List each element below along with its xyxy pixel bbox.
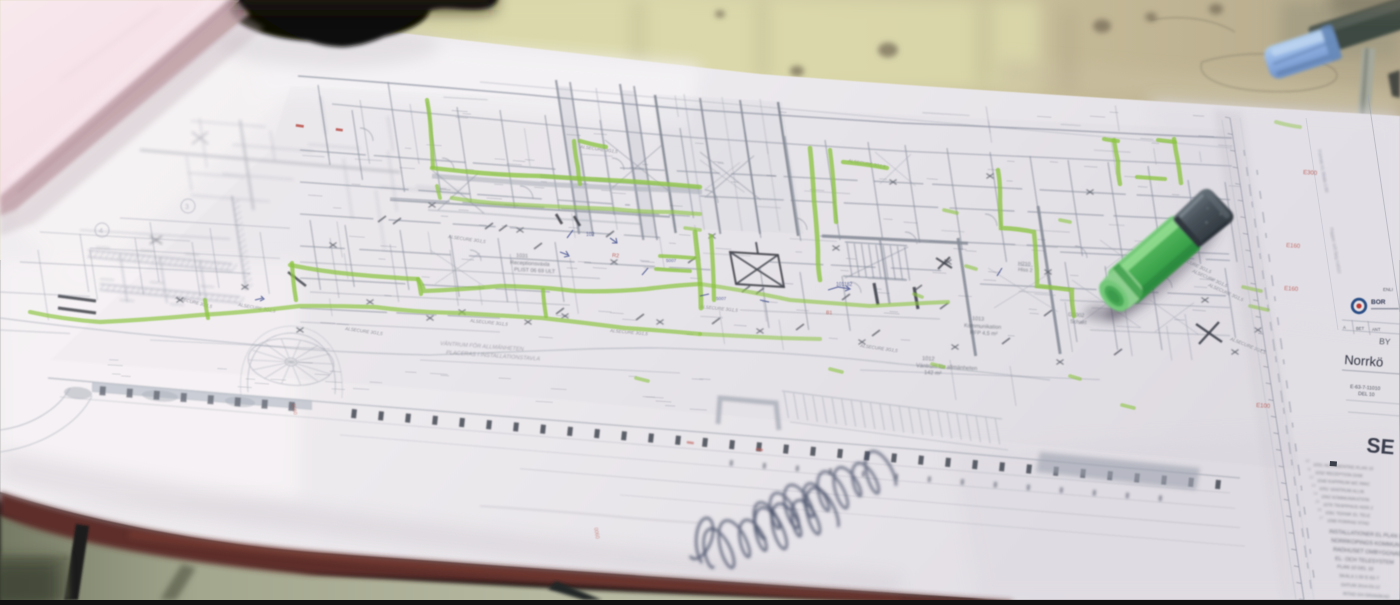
svg-text:A: A: [1343, 325, 1346, 330]
svg-text:B1: B1: [826, 310, 833, 316]
svg-text:DEL 10: DEL 10: [1358, 391, 1375, 398]
svg-text:SE: SE: [1366, 434, 1396, 459]
svg-text:3: 3: [185, 204, 189, 211]
svg-text:ENLI: ENLI: [1383, 287, 1393, 292]
svg-text:1012: 1012: [922, 356, 935, 363]
svg-text:142 m²: 142 m²: [924, 370, 942, 377]
svg-text:Norrkö: Norrkö: [1344, 352, 1384, 370]
svg-text:1031: 1031: [516, 253, 528, 260]
svg-text:Hiss 2: Hiss 2: [1018, 267, 1033, 274]
svg-text:E160: E160: [1286, 243, 1301, 250]
svg-text:102: 102: [586, 232, 595, 238]
svg-text:E300: E300: [1303, 170, 1318, 177]
svg-text:5007: 5007: [716, 296, 727, 301]
svg-text:BET: BET: [1356, 326, 1365, 331]
svg-text:5007: 5007: [666, 258, 677, 263]
svg-text:BOR: BOR: [1371, 299, 1386, 306]
svg-text:Schakt: Schakt: [1070, 319, 1087, 326]
svg-text:E100: E100: [1256, 403, 1271, 410]
svg-text:ANT: ANT: [1372, 327, 1381, 332]
svg-text:BY: BY: [1379, 336, 1391, 347]
svg-text:101182: 101182: [836, 282, 853, 288]
svg-text:1013: 1013: [972, 316, 984, 323]
svg-text:R2: R2: [612, 253, 619, 259]
svg-text:E160: E160: [1284, 286, 1299, 293]
svg-text:4: 4: [99, 228, 103, 235]
